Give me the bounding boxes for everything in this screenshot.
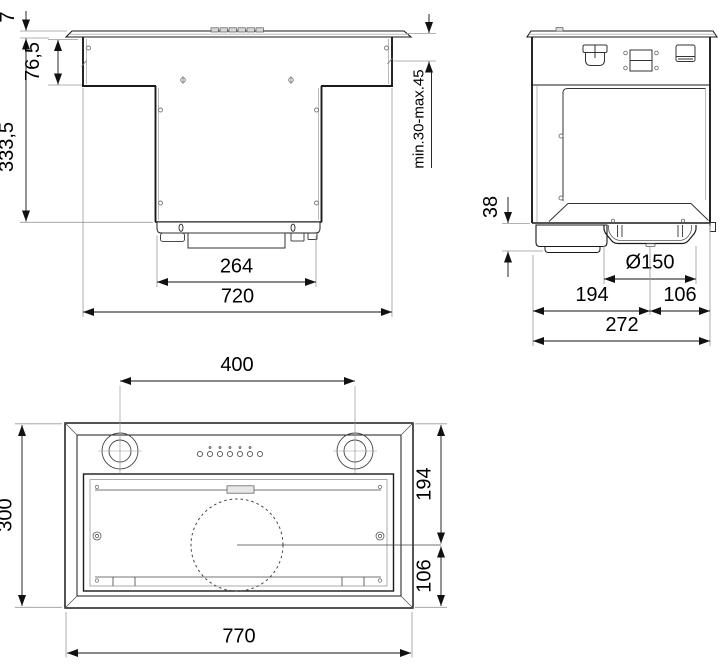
technical-drawing-canvas: 7 333,5 76,5 min.30-max.45 <box>0 0 722 664</box>
dim-label-300: 300 <box>0 498 17 531</box>
front-body-outline <box>82 38 393 223</box>
side-top-frame <box>527 28 717 37</box>
dim-label-38: 38 <box>480 196 502 218</box>
side-body-outline <box>532 38 710 224</box>
front-lower-box <box>161 233 318 248</box>
bottom-view: 400 300 194 106 770 <box>0 354 447 658</box>
side-bottom-slant <box>549 204 709 223</box>
side-junction-box <box>624 50 659 71</box>
dim-bottom-motor-position: 194 106 <box>414 424 448 608</box>
dim-side-lower-height: 38 <box>480 196 543 277</box>
dim-label-side-106: 106 <box>663 284 696 306</box>
dim-label-7: 7 <box>0 11 19 22</box>
dim-label-side-194: 194 <box>575 284 608 306</box>
dim-label-333-5: 333,5 <box>0 122 18 172</box>
dim-bottom-side-depth: 300 <box>0 424 62 608</box>
dim-front-upper-height: 76,5 <box>22 40 82 86</box>
front-filter-band <box>157 222 320 233</box>
dim-label-76-5: 76,5 <box>22 42 44 81</box>
technical-drawing-page: 7 333,5 76,5 min.30-max.45 <box>0 0 722 664</box>
dim-front-body-width: 720 <box>83 286 392 313</box>
dim-label-bottom-194: 194 <box>414 467 436 500</box>
front-view: 7 333,5 76,5 min.30-max.45 <box>0 11 436 317</box>
front-projection-lines <box>83 88 392 317</box>
dim-label-400: 400 <box>220 354 253 376</box>
side-mounting-bracket-right <box>676 45 695 62</box>
dim-front-frame-thickness: 7 <box>0 11 67 38</box>
dim-bottom-total-width: 770 <box>66 612 412 658</box>
dim-label-264: 264 <box>220 256 253 278</box>
front-screw-holes <box>82 46 393 205</box>
side-lower-box <box>536 225 607 253</box>
bottom-filter-housing <box>84 474 394 591</box>
side-inner-panel <box>537 86 706 222</box>
side-exhaust-outlet <box>604 223 716 247</box>
dim-label-bottom-106: 106 <box>414 559 436 592</box>
dim-label-720: 720 <box>221 286 254 308</box>
dim-label-min30-max45: min.30-max.45 <box>411 69 428 168</box>
side-view: 38 Ø150 194 106 272 <box>480 28 717 346</box>
dim-label-272: 272 <box>605 314 638 336</box>
side-mounting-bracket-left <box>583 45 607 66</box>
dim-label-770: 770 <box>222 626 255 648</box>
